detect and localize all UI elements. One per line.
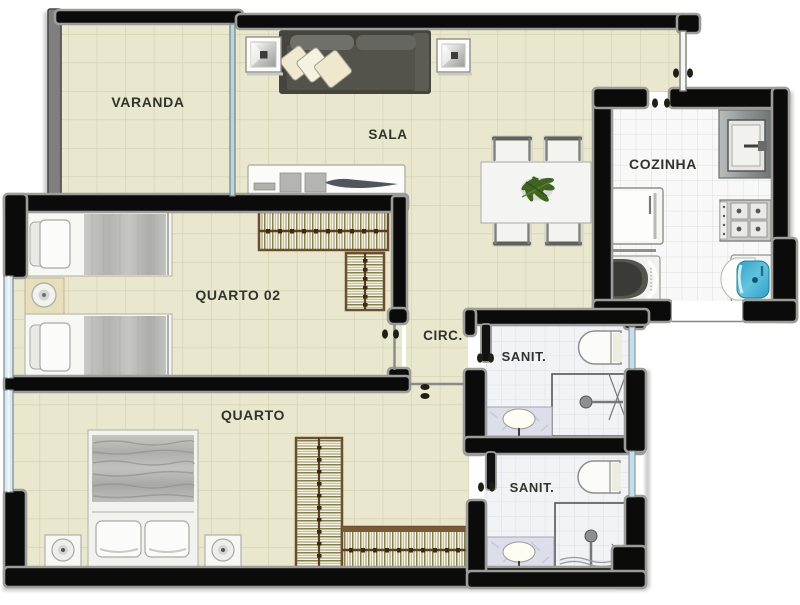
svg-text:SALA: SALA	[368, 127, 407, 142]
svg-text:QUARTO 02: QUARTO 02	[195, 287, 280, 303]
svg-text:SANIT.: SANIT.	[510, 480, 555, 495]
svg-text:CIRC.: CIRC.	[423, 328, 463, 343]
svg-text:COZINHA: COZINHA	[629, 156, 697, 172]
svg-text:QUARTO: QUARTO	[221, 407, 285, 423]
svg-text:SANIT.: SANIT.	[502, 349, 547, 364]
svg-text:VARANDA: VARANDA	[111, 94, 184, 110]
